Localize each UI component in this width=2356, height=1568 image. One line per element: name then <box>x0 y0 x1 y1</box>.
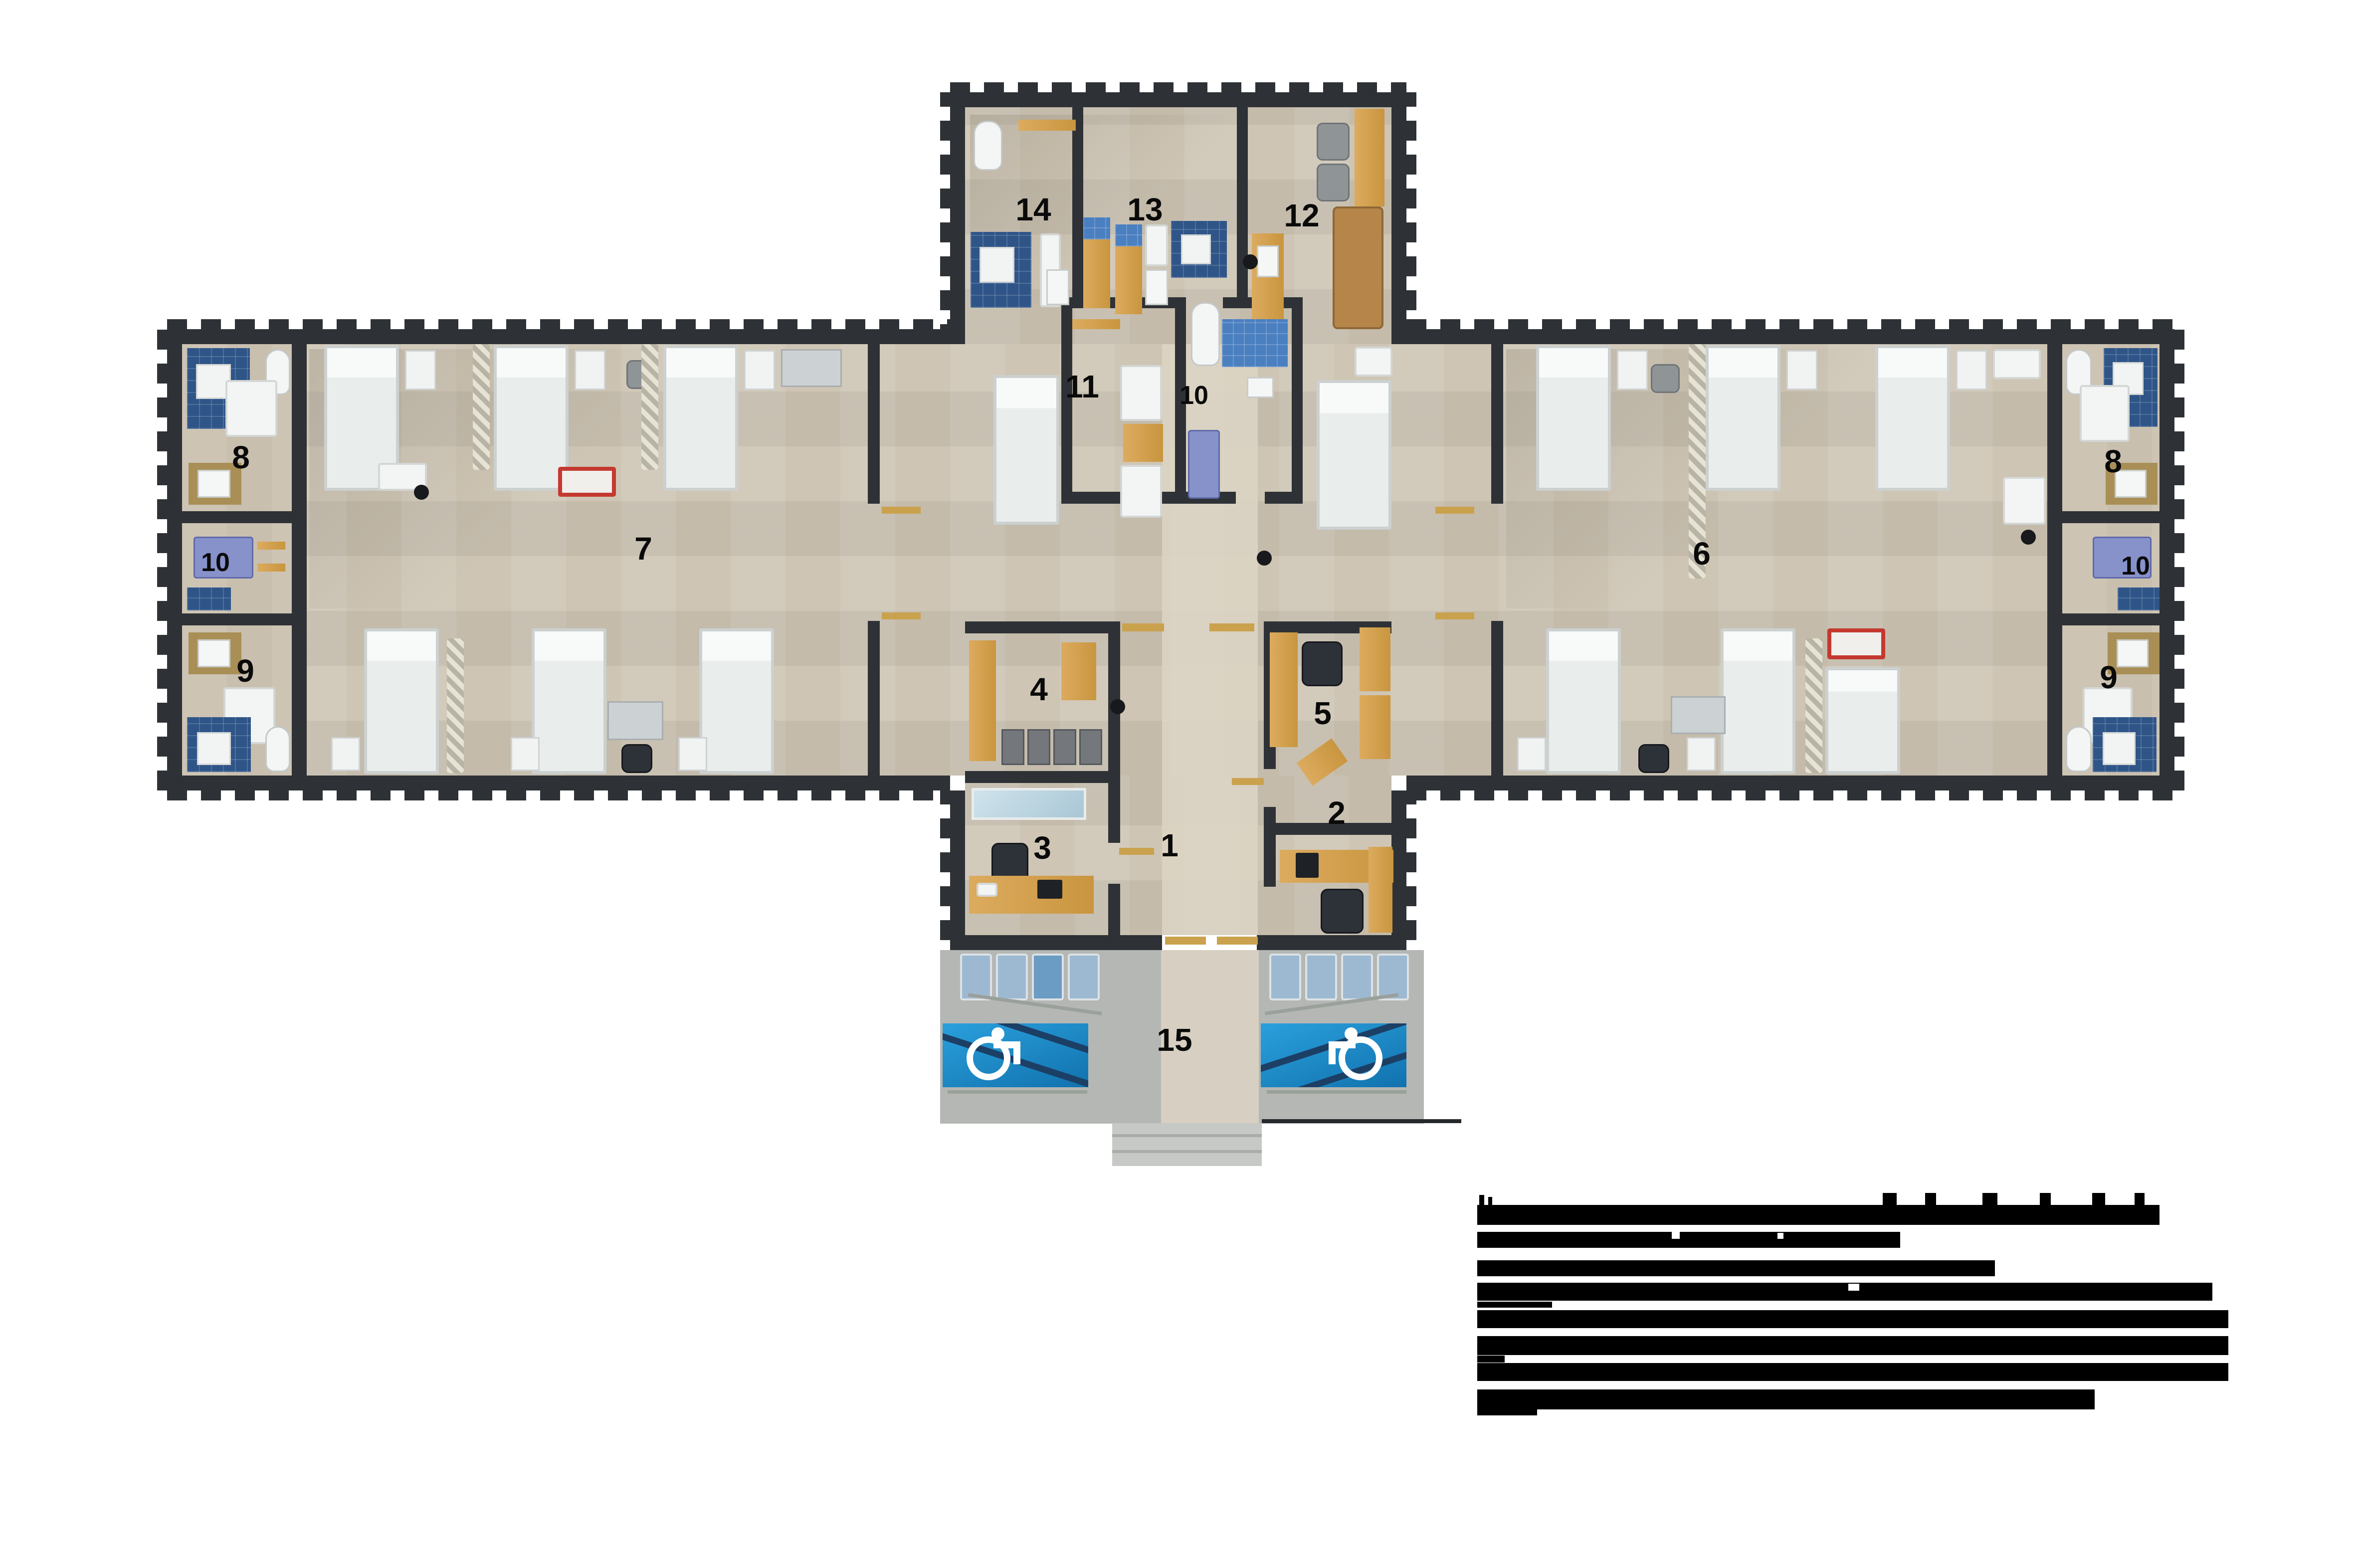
hospital-bed <box>1706 345 1780 491</box>
shower-cubicle <box>225 380 277 437</box>
wall-teeth <box>1406 790 2174 800</box>
redaction-gap <box>1672 1232 1680 1239</box>
hospital-bed <box>1536 345 1611 491</box>
door-stop <box>2021 530 2036 545</box>
outer-wall <box>1406 329 2174 344</box>
entry-door-leaf <box>1217 937 1258 945</box>
hospital-bed <box>699 628 774 774</box>
redaction-gap <box>1777 1233 1783 1239</box>
wall-teeth <box>167 319 950 329</box>
room-label-7: 7 <box>634 530 652 567</box>
paper-stack <box>977 883 997 897</box>
wall-teeth <box>167 790 950 800</box>
vanity-sink <box>1145 269 1168 305</box>
door-stop <box>414 485 429 500</box>
hospital-bed <box>993 375 1059 525</box>
handrail <box>948 1090 1087 1094</box>
privacy-screen <box>447 638 464 773</box>
redaction-line <box>1477 1363 2228 1381</box>
legend-redacted <box>1476 1192 2234 1416</box>
door-stop <box>1243 254 1258 269</box>
outer-wall <box>950 92 1406 107</box>
toilet <box>1191 302 1220 366</box>
partition-wall <box>182 613 292 625</box>
shower-tray <box>2103 732 2136 765</box>
room-label-5: 5 <box>1314 695 1332 732</box>
room-label-10-center: 10 <box>1179 381 1208 410</box>
partition-wall <box>868 621 880 776</box>
partition-wall <box>868 344 880 504</box>
room-label-2: 2 <box>1328 794 1346 831</box>
partition-wall <box>965 771 1120 783</box>
redaction-line <box>1477 1310 2228 1328</box>
door-leaf <box>1122 623 1164 631</box>
privacy-screen <box>473 344 490 470</box>
nightstand <box>1617 350 1648 390</box>
office-chair <box>1302 641 1343 686</box>
site-boundary-line <box>1262 1119 1461 1123</box>
sink-basin <box>197 639 230 667</box>
kitchen-sink <box>1257 245 1279 277</box>
waiting-chair <box>996 954 1028 1000</box>
outer-wall <box>1257 935 1406 950</box>
wheelchair-icon <box>1327 1027 1386 1083</box>
room-label-10-left: 10 <box>201 548 230 578</box>
laundry-cart <box>1188 430 1220 499</box>
wood-cabinet <box>1115 246 1142 314</box>
door-leaf <box>1119 848 1154 855</box>
wall-teeth <box>1406 319 2174 329</box>
wood-shelf <box>257 542 285 550</box>
shower-tray <box>1181 234 1211 264</box>
partition-wall <box>965 621 1108 633</box>
wood-ledge <box>1018 120 1076 131</box>
wall-teeth <box>1406 790 1416 940</box>
redaction-line <box>1477 1283 2212 1301</box>
wall-cabinet <box>1993 349 2041 379</box>
floor-plan-canvas: 1 2 3 4 5 6 7 8 8 9 9 10 10 10 11 12 13 … <box>0 0 2356 1568</box>
wheelchair-icon <box>963 1027 1022 1083</box>
wall-teeth <box>2174 329 2184 790</box>
room-label-12: 12 <box>1284 197 1319 234</box>
partition-wall <box>292 344 307 776</box>
redaction-tick <box>1883 1193 1897 1205</box>
room-label-14: 14 <box>1015 191 1051 228</box>
toilet <box>265 726 290 772</box>
accessible-parking-mat <box>943 1023 1088 1087</box>
outer-wall <box>950 107 965 344</box>
partition-wall <box>2062 511 2160 523</box>
hospital-bed <box>1875 345 1950 491</box>
wood-shelf-unit <box>969 640 996 761</box>
partition-wall <box>1108 884 1120 935</box>
wall-teeth <box>157 329 167 790</box>
privacy-screen <box>641 344 658 470</box>
wall-counter <box>2003 477 2046 525</box>
bathroom-tile-blue <box>1222 319 1288 367</box>
outer-wall <box>2160 329 2174 790</box>
wardrobe <box>1360 627 1390 691</box>
room-label-6: 6 <box>1693 535 1711 572</box>
redaction-tick <box>1488 1197 1492 1205</box>
waiting-chair <box>960 954 992 1000</box>
handrail <box>1267 1090 1406 1094</box>
sink-basin <box>2117 639 2149 667</box>
waiting-chair <box>1032 954 1064 1000</box>
waiting-chair <box>1068 954 1100 1000</box>
office-chair <box>621 744 652 773</box>
partition-wall <box>1072 107 1083 299</box>
instrument-table <box>607 701 663 740</box>
partition-wall <box>1264 807 1276 887</box>
wall-teeth <box>1406 92 1416 344</box>
door-stop <box>1257 551 1272 566</box>
wardrobe <box>1360 695 1390 759</box>
hospital-bed <box>532 628 606 774</box>
redaction-tick <box>1982 1193 1997 1205</box>
crash-cart-red <box>1827 628 1885 659</box>
partition-wall <box>1491 621 1503 776</box>
locker <box>1053 729 1076 765</box>
partition-wall <box>1108 621 1120 771</box>
entrance-steps <box>1112 1123 1262 1166</box>
outer-wall <box>167 329 950 344</box>
instrument-table <box>1671 696 1726 734</box>
redaction-tick <box>1925 1193 1936 1205</box>
waiting-chair <box>1305 954 1337 1000</box>
partition-wall <box>1265 492 1303 504</box>
cabinet-blue-top <box>1083 217 1110 239</box>
redaction-line <box>1477 1232 1900 1248</box>
redaction-stub <box>1477 1302 1552 1308</box>
door-leaf <box>882 507 921 514</box>
room-label-8-left: 8 <box>232 439 250 476</box>
sink-basin <box>197 470 230 498</box>
door-leaf <box>882 612 921 619</box>
desk <box>1270 632 1298 747</box>
hospital-bed <box>1721 628 1795 774</box>
redaction-gap <box>1848 1284 1859 1291</box>
wall-teeth <box>940 92 950 344</box>
shower-cubicle <box>1355 347 1392 377</box>
room-label-11: 11 <box>1065 368 1099 405</box>
hospital-bed <box>364 628 439 774</box>
vanity-sink <box>1046 269 1069 305</box>
toilet <box>974 121 1002 171</box>
door-leaf <box>1435 612 1474 619</box>
nightstand <box>405 350 436 390</box>
outer-wall <box>167 776 950 790</box>
wall-teeth <box>950 82 1406 92</box>
outer-wall <box>1391 790 1406 935</box>
office-chair <box>1321 889 1364 934</box>
shower-tray <box>980 247 1014 283</box>
outer-wall <box>950 935 1162 950</box>
partition-wall <box>1162 492 1186 504</box>
hospital-bed <box>663 345 738 491</box>
office-chair <box>1638 744 1669 773</box>
toilet <box>2066 726 2092 772</box>
waiting-chair <box>1341 954 1373 1000</box>
redaction-line <box>1477 1336 2228 1355</box>
room-label-15: 15 <box>1157 1021 1192 1058</box>
room-label-9-right: 9 <box>2100 659 2118 696</box>
hospital-bed <box>1317 380 1391 530</box>
nightstand <box>575 350 605 390</box>
nightstand <box>744 350 775 390</box>
nightstand <box>1687 737 1716 771</box>
nightstand <box>331 737 360 771</box>
redaction-tick <box>2135 1193 2145 1205</box>
cabinet <box>1369 847 1392 933</box>
entry-door-leaf <box>1165 937 1206 945</box>
partition-wall <box>1237 107 1248 299</box>
outer-wall <box>167 329 182 790</box>
shower-tray <box>197 732 231 765</box>
armchair <box>1120 465 1162 518</box>
partition-wall <box>1292 297 1303 504</box>
computer-monitor <box>1296 853 1319 878</box>
wall-teeth <box>940 790 950 940</box>
screen-panel <box>1145 224 1168 266</box>
sink-basin <box>1247 377 1274 398</box>
door-stop <box>1110 699 1125 714</box>
redaction-tick <box>2040 1193 2051 1205</box>
wood-shelf <box>257 564 285 572</box>
redaction-stub <box>1477 1356 1505 1363</box>
tile-strip <box>187 588 231 610</box>
door-leaf <box>1435 507 1474 514</box>
room-label-13: 13 <box>1127 191 1163 228</box>
waiting-chair <box>1269 954 1301 1000</box>
redaction-line <box>1477 1389 2095 1409</box>
office-chair <box>1651 364 1680 393</box>
wood-ledge <box>1072 319 1120 329</box>
room-label-9-left: 9 <box>236 652 254 689</box>
hospital-bed <box>494 345 569 491</box>
computer-monitor <box>1037 880 1062 899</box>
partition-wall <box>1108 783 1120 843</box>
office-chair <box>1317 164 1350 201</box>
outer-wall <box>1406 776 2174 790</box>
desk <box>781 349 842 387</box>
partition-wall <box>182 511 292 523</box>
partition-wall <box>2062 613 2160 625</box>
desk <box>1355 109 1384 206</box>
tile-strip <box>2118 588 2160 610</box>
shower-cubicle <box>2080 385 2130 442</box>
partition-wall <box>2047 344 2062 776</box>
nightstand <box>1786 350 1817 390</box>
nightstand <box>511 737 540 771</box>
wood-shelf-unit <box>1061 642 1096 700</box>
room-label-3: 3 <box>1033 829 1051 866</box>
locker <box>1079 729 1102 765</box>
redaction-line <box>1477 1260 1995 1276</box>
hospital-bed <box>1825 667 1900 774</box>
hospital-bed <box>1546 628 1621 774</box>
office-chair <box>1317 123 1350 161</box>
wood-cabinet <box>1083 239 1110 308</box>
redaction-tick <box>2092 1193 2105 1205</box>
crash-cart-red <box>558 467 616 497</box>
door-leaf <box>1232 778 1264 785</box>
room-label-8-right: 8 <box>2104 443 2122 480</box>
nightstand <box>678 737 707 771</box>
nightstand <box>1517 737 1546 771</box>
redaction-tick <box>1479 1195 1484 1205</box>
room-label-10-right: 10 <box>2121 551 2150 581</box>
partition-wall <box>1491 344 1503 504</box>
sofa <box>1333 206 1383 329</box>
redaction-line <box>1477 1205 2160 1225</box>
locker <box>1001 729 1024 765</box>
room-label-4: 4 <box>1030 671 1048 708</box>
outer-wall <box>1391 107 1406 344</box>
accessible-parking-mat <box>1261 1023 1406 1087</box>
exam-table-glass <box>972 788 1086 820</box>
locker <box>1027 729 1050 765</box>
outer-wall <box>950 790 965 935</box>
redaction-stub <box>1477 1409 1537 1415</box>
door-leaf <box>1209 623 1254 631</box>
armchair <box>1120 365 1162 421</box>
nightstand <box>1956 350 1987 390</box>
room-label-1: 1 <box>1161 827 1178 864</box>
side-table <box>1123 424 1163 462</box>
privacy-screen <box>1805 638 1822 773</box>
